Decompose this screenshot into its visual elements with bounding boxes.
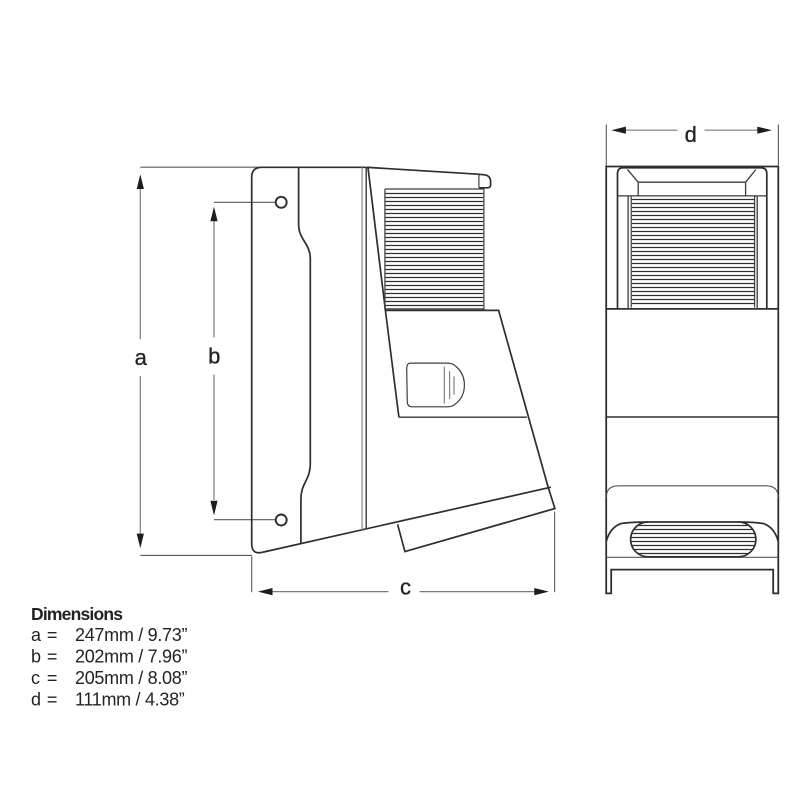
svg-text:=: =: [47, 647, 57, 667]
svg-text:c: c: [31, 668, 40, 688]
svg-text:205mm / 8.08”: 205mm / 8.08”: [75, 668, 187, 688]
svg-text:202mm / 7.96”: 202mm / 7.96”: [75, 647, 187, 667]
svg-text:247mm / 9.73”: 247mm / 9.73”: [75, 625, 187, 645]
svg-text:d: d: [31, 690, 41, 710]
svg-text:=: =: [47, 690, 57, 710]
svg-text:=: =: [47, 625, 57, 645]
svg-text:a: a: [31, 625, 42, 645]
svg-text:d: d: [685, 122, 697, 147]
svg-text:Dimensions: Dimensions: [31, 604, 123, 624]
svg-text:c: c: [400, 575, 411, 600]
svg-text:=: =: [47, 668, 57, 688]
svg-text:b: b: [31, 647, 41, 667]
svg-text:111mm / 4.38”: 111mm / 4.38”: [75, 690, 185, 710]
svg-text:a: a: [135, 345, 148, 370]
svg-text:b: b: [208, 344, 220, 369]
